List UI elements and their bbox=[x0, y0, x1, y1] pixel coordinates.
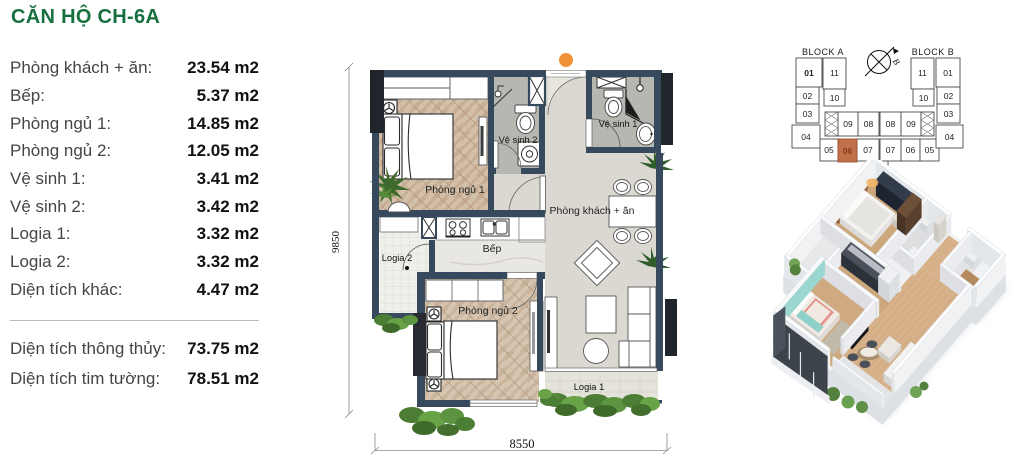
svg-text:BLOCK A: BLOCK A bbox=[802, 47, 844, 57]
svg-text:Bếp: Bếp bbox=[483, 243, 502, 255]
svg-text:02: 02 bbox=[944, 91, 954, 101]
svg-text:9850: 9850 bbox=[330, 231, 342, 254]
svg-text:B: B bbox=[891, 57, 903, 68]
svg-text:BLOCK B: BLOCK B bbox=[912, 47, 955, 57]
svg-text:03: 03 bbox=[944, 109, 954, 119]
svg-text:01: 01 bbox=[943, 68, 953, 78]
svg-text:08: 08 bbox=[886, 119, 896, 129]
svg-text:8550: 8550 bbox=[510, 437, 535, 451]
svg-text:09: 09 bbox=[843, 119, 853, 129]
svg-text:Vệ sinh 2: Vệ sinh 2 bbox=[499, 135, 538, 145]
svg-text:01: 01 bbox=[804, 68, 814, 78]
svg-text:Phòng ngủ 1: Phòng ngủ 1 bbox=[425, 184, 485, 196]
svg-text:06: 06 bbox=[906, 145, 916, 155]
svg-text:05: 05 bbox=[925, 145, 935, 155]
svg-text:Phòng ngủ 2: Phòng ngủ 2 bbox=[458, 305, 518, 317]
svg-text:04: 04 bbox=[945, 132, 955, 142]
svg-text:10: 10 bbox=[919, 93, 929, 103]
svg-text:04: 04 bbox=[801, 132, 811, 142]
svg-text:06: 06 bbox=[843, 146, 853, 156]
svg-text:08: 08 bbox=[864, 119, 874, 129]
svg-text:03: 03 bbox=[803, 109, 813, 119]
svg-text:Logia 2: Logia 2 bbox=[382, 253, 413, 263]
svg-text:11: 11 bbox=[918, 68, 927, 78]
svg-text:11: 11 bbox=[830, 68, 839, 78]
svg-text:07: 07 bbox=[886, 145, 896, 155]
svg-text:Phòng khách + ăn: Phòng khách + ăn bbox=[550, 205, 635, 217]
svg-text:09: 09 bbox=[906, 119, 916, 129]
svg-text:07: 07 bbox=[863, 145, 873, 155]
svg-text:Vệ sinh 1: Vệ sinh 1 bbox=[599, 119, 638, 129]
svg-text:Logia 1: Logia 1 bbox=[574, 382, 605, 392]
svg-text:05: 05 bbox=[824, 145, 834, 155]
svg-text:02: 02 bbox=[803, 91, 813, 101]
svg-text:10: 10 bbox=[830, 93, 840, 103]
